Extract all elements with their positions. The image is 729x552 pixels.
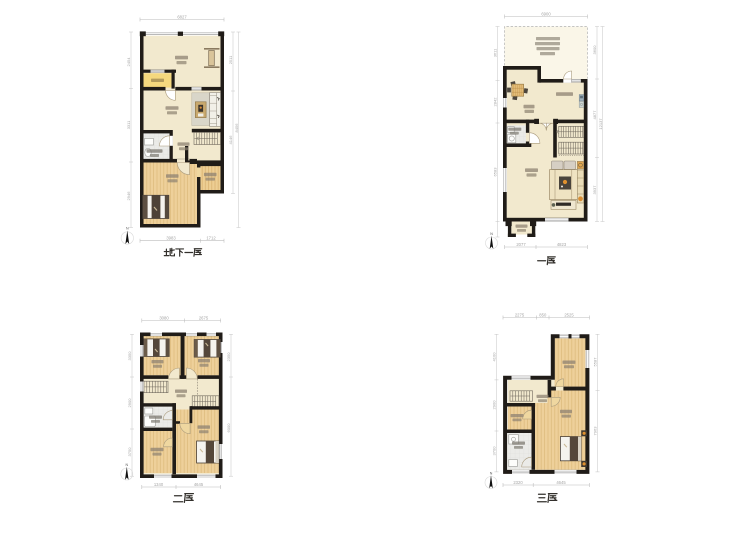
svg-text:2511: 2511 — [228, 55, 233, 64]
svg-text:2454: 2454 — [126, 57, 131, 67]
svg-text:3700: 3700 — [492, 446, 497, 456]
svg-text:2350: 2350 — [226, 352, 231, 362]
svg-text:3937: 3937 — [592, 185, 597, 195]
svg-text:4146: 4146 — [228, 135, 233, 145]
svg-text:850: 850 — [539, 312, 547, 317]
svg-text:4877: 4877 — [592, 110, 597, 120]
svg-text:3750: 3750 — [127, 447, 132, 457]
svg-text:4823: 4823 — [557, 242, 567, 247]
svg-text:7963: 7963 — [593, 426, 598, 436]
svg-text:2320: 2320 — [513, 480, 523, 485]
svg-text:2900: 2900 — [492, 400, 497, 410]
svg-text:4100: 4100 — [492, 352, 497, 362]
svg-text:1340: 1340 — [154, 482, 164, 487]
svg-text:6827: 6827 — [177, 14, 187, 19]
svg-text:4645: 4645 — [556, 480, 566, 485]
svg-text:3311: 3311 — [126, 120, 131, 129]
svg-text:2525: 2525 — [564, 312, 574, 317]
svg-text:2842: 2842 — [493, 97, 498, 107]
svg-text:N: N — [125, 463, 128, 467]
svg-text:2675: 2675 — [199, 315, 209, 320]
svg-text:3350: 3350 — [127, 351, 132, 361]
svg-text:2946: 2946 — [126, 191, 131, 201]
svg-text:3611: 3611 — [493, 48, 498, 57]
svg-text:4645: 4645 — [194, 482, 204, 487]
svg-text:N: N — [490, 472, 493, 476]
svg-text:12137: 12137 — [598, 118, 603, 130]
svg-text:N: N — [490, 232, 493, 236]
svg-text:5587: 5587 — [593, 357, 598, 367]
svg-text:1712: 1712 — [206, 236, 216, 241]
svg-text:3600: 3600 — [592, 45, 597, 55]
svg-text:3080: 3080 — [159, 315, 169, 320]
svg-text:6000: 6000 — [226, 423, 231, 433]
svg-text:3983: 3983 — [166, 236, 176, 241]
svg-text:2077: 2077 — [516, 242, 526, 247]
svg-text:6900: 6900 — [541, 11, 551, 16]
svg-text:2275: 2275 — [515, 312, 525, 317]
svg-text:N: N — [126, 227, 129, 231]
svg-text:8456: 8456 — [234, 123, 239, 133]
svg-text:6583: 6583 — [493, 167, 498, 177]
svg-text:2900: 2900 — [127, 398, 132, 408]
